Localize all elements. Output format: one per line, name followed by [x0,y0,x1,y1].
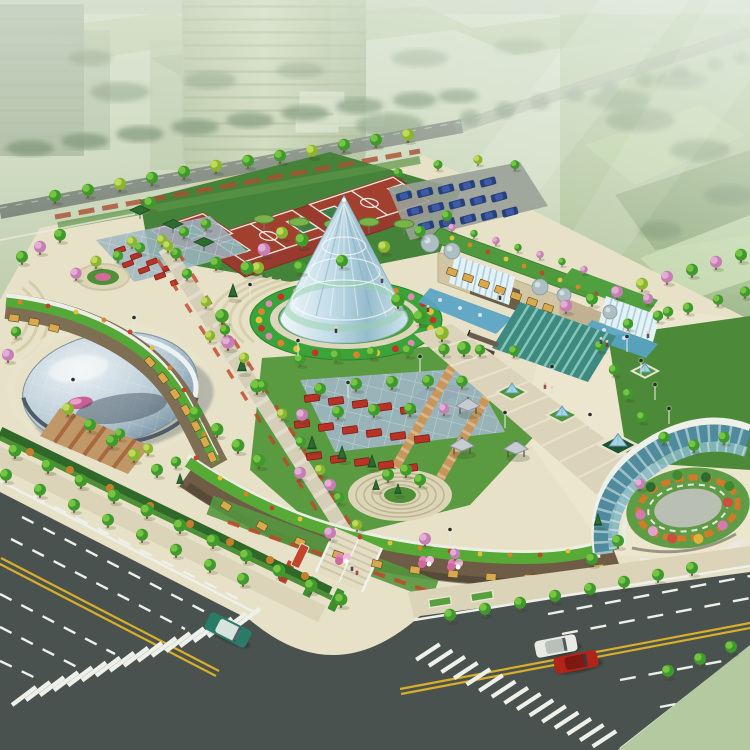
roof-flower [566,549,571,554]
roof-flower [504,257,509,262]
roof-flower [18,300,23,305]
pedestrian [551,386,554,393]
flower-planter [342,425,358,434]
roof-flower [218,476,223,481]
flower-dot [277,293,284,300]
roof-flower [558,278,563,283]
roof-flower [468,243,473,248]
roof-flower [540,271,545,276]
shop-window [28,318,39,327]
roof-flower [478,552,483,557]
orange-shrub [66,466,74,474]
roof-flower [182,388,187,393]
roof-flower [46,304,51,309]
flower-planter [390,431,406,440]
roof-flower [418,546,423,551]
roof-flower [194,456,199,461]
roof-flower [168,366,173,371]
cone-apex-glint [342,198,346,202]
roof-flower [150,346,155,351]
flower-planter [414,434,430,443]
flower-planter [354,457,370,466]
pedestrian [381,276,384,283]
flower-planter [318,422,334,431]
stone-sphere [603,305,617,319]
orange-shrub [26,448,34,456]
flower-planter [304,393,320,402]
roof-flower [74,310,79,315]
roof-flower [202,432,207,437]
flower-dot [277,340,284,347]
pedestrian [544,382,547,389]
roof-flower [270,506,275,511]
flower-dot [256,317,263,324]
pedestrian [427,305,430,312]
flower-planter [328,396,344,405]
rendering-canvas [0,0,750,750]
shop-window [486,573,496,581]
pedestrian [600,337,603,344]
roof-flower [388,541,393,546]
flower-dot [266,300,273,307]
pedestrian [499,293,502,300]
circular-lawn [348,469,452,521]
shop-window [410,566,421,574]
stone-sphere [421,234,439,252]
roof-flower [576,285,581,290]
flower-planter [378,460,394,469]
shop-window [448,570,459,578]
roof-flower [522,264,527,269]
pedestrian [335,326,338,333]
shop-window [9,314,20,322]
roof-flower [102,318,107,323]
orange-shrub [186,520,194,528]
flower-dot [430,317,437,324]
orange-shrub [301,572,309,580]
flower-dot [353,351,360,358]
stone-sphere [532,279,548,295]
orange-shrub [266,556,274,564]
roof-flower [358,535,363,540]
flower-dot [258,325,265,332]
pedestrian [356,568,359,575]
roof-flower [508,553,513,558]
flower-dot [312,349,319,356]
flower-dot [293,345,300,352]
flower-dot [408,293,415,300]
pedestrian [606,340,609,347]
roof-flower [298,517,303,522]
flower-dot [266,333,273,340]
flower-circle [77,264,129,290]
flower-dot [392,345,399,352]
roof-flower [538,553,543,558]
roof-flower [486,250,491,255]
roof-flower [450,236,455,241]
pedestrian [647,331,650,338]
roof-flower [128,330,133,335]
roof-flower [244,492,249,497]
flower-planter [352,399,368,408]
flower-planter [366,428,382,437]
orange-shrub [226,538,234,546]
plaza-aerial-rendering [0,0,750,750]
flower-dot [258,308,265,315]
pedestrian [351,564,354,571]
stone-sphere [444,243,460,259]
stone-sphere [557,288,571,302]
